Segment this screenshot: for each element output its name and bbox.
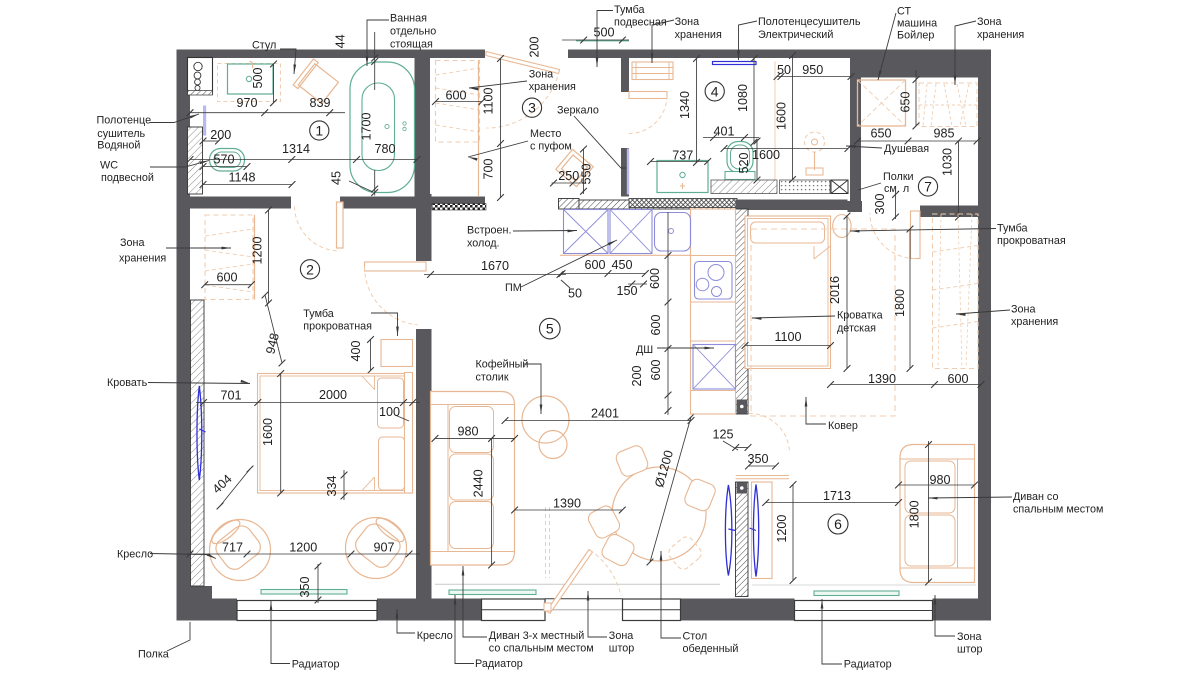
svg-text:970: 970 [236,96,257,110]
svg-text:Стул: Стул [252,40,276,52]
svg-text:907: 907 [373,541,394,555]
svg-text:334: 334 [325,475,339,496]
svg-text:45: 45 [330,171,344,185]
svg-text:401: 401 [713,125,734,139]
svg-text:хранения: хранения [1011,316,1058,328]
svg-text:стоящая: стоящая [390,39,433,51]
svg-text:1200: 1200 [775,515,789,543]
svg-text:100: 100 [379,405,400,419]
svg-text:подвесная: подвесная [614,17,667,29]
svg-text:1: 1 [315,123,323,139]
svg-text:1600: 1600 [752,148,780,162]
svg-text:WC: WC [100,160,118,172]
svg-text:700: 700 [482,158,496,179]
svg-text:6: 6 [834,516,842,532]
svg-text:штор: штор [957,644,983,656]
svg-text:с пуфом: с пуфом [530,141,572,153]
svg-text:Тумба: Тумба [303,308,334,320]
svg-text:Встроен.: Встроен. [467,225,512,237]
svg-text:Полотенце: Полотенце [97,115,152,127]
svg-text:Полка: Полка [138,649,169,661]
svg-text:400: 400 [349,340,363,361]
svg-text:1670: 1670 [481,259,509,273]
svg-text:250: 250 [558,169,579,183]
svg-text:Зеркало: Зеркало [557,105,599,117]
svg-text:подвесной: подвесной [101,172,154,184]
svg-text:1713: 1713 [823,489,851,503]
svg-text:980: 980 [929,473,950,487]
svg-text:350: 350 [298,576,312,597]
svg-text:1340: 1340 [678,91,692,119]
svg-text:600: 600 [445,89,466,103]
svg-text:Диван 3-х местный: Диван 3-х местный [489,630,584,642]
svg-text:1030: 1030 [941,148,955,176]
svg-text:600: 600 [649,314,663,335]
svg-text:50: 50 [777,63,791,77]
svg-text:столик: столик [476,372,509,384]
svg-text:Тумба: Тумба [614,4,645,16]
svg-text:7: 7 [924,179,932,195]
svg-text:машина: машина [897,18,937,30]
svg-text:350: 350 [747,452,768,466]
svg-text:хранения: хранения [119,253,166,265]
svg-text:1700: 1700 [360,112,374,140]
svg-text:хранения: хранения [529,81,576,93]
svg-text:хранения: хранения [675,29,722,41]
svg-text:Душевая: Душевая [884,143,929,155]
svg-text:Зона: Зона [1011,304,1036,316]
svg-text:44: 44 [334,34,348,48]
svg-text:985: 985 [933,127,954,141]
svg-text:1314: 1314 [282,142,310,156]
svg-text:600: 600 [649,359,663,380]
svg-text:950: 950 [802,63,823,77]
svg-text:300: 300 [873,193,887,214]
svg-text:1600: 1600 [774,102,788,130]
svg-text:ДШ: ДШ [636,344,653,356]
svg-text:200: 200 [528,36,542,57]
svg-text:спальным местом: спальным местом [1013,504,1103,516]
svg-text:1800: 1800 [893,289,907,317]
svg-text:1148: 1148 [228,171,255,185]
svg-text:737: 737 [672,149,693,163]
svg-text:3: 3 [528,100,536,116]
svg-text:Зона: Зона [609,630,634,642]
svg-text:1100: 1100 [774,330,801,344]
svg-text:500: 500 [251,67,265,88]
svg-text:50: 50 [568,287,582,301]
svg-text:прокроватная: прокроватная [997,235,1066,247]
svg-text:2440: 2440 [472,469,486,497]
svg-text:хранения: хранения [977,29,1024,41]
svg-text:550: 550 [580,163,594,184]
svg-text:Полки: Полки [883,171,914,183]
svg-text:со спальным местом: со спальным местом [489,643,594,655]
svg-text:Кресло: Кресло [417,630,453,642]
svg-text:839: 839 [309,96,330,110]
svg-text:см. л: см. л [884,183,909,195]
svg-text:Кофейный: Кофейный [476,359,529,371]
svg-text:450: 450 [611,258,632,272]
svg-text:Радиатор: Радиатор [844,659,892,671]
svg-text:780: 780 [374,142,395,156]
svg-text:200: 200 [210,128,231,142]
svg-text:прокроватная: прокроватная [303,321,372,333]
svg-text:600: 600 [648,268,662,289]
svg-text:Зона: Зона [957,631,982,643]
svg-text:2000: 2000 [319,388,347,402]
svg-text:570: 570 [213,153,234,167]
svg-text:Кроватка: Кроватка [837,310,883,322]
svg-text:600: 600 [584,258,605,272]
svg-text:Водяной: Водяной [97,140,140,152]
svg-text:СТ: СТ [897,6,911,18]
svg-text:1200: 1200 [289,541,317,555]
svg-text:1600: 1600 [261,418,275,446]
svg-text:125: 125 [712,428,733,442]
svg-text:Стол: Стол [683,631,708,643]
svg-text:обеденный: обеденный [683,643,739,655]
svg-text:150: 150 [616,284,637,298]
svg-text:4: 4 [711,83,719,99]
svg-text:холод.: холод. [467,238,500,250]
svg-text:Зона: Зона [977,16,1002,28]
svg-text:1800: 1800 [907,500,921,528]
svg-text:600: 600 [947,372,968,386]
svg-text:200: 200 [630,365,644,386]
svg-text:Кровать: Кровать [107,377,148,389]
svg-text:ПМ: ПМ [505,282,522,294]
svg-text:520: 520 [737,152,751,173]
svg-text:1200: 1200 [251,236,265,264]
svg-text:детская: детская [837,323,876,335]
svg-text:Зона: Зона [120,237,145,249]
svg-text:701: 701 [220,389,241,403]
svg-text:1390: 1390 [553,497,581,511]
svg-text:600: 600 [216,271,237,285]
svg-text:1080: 1080 [736,84,750,112]
svg-text:Место: Место [530,128,561,140]
svg-text:1100: 1100 [482,87,496,114]
svg-text:2401: 2401 [591,407,619,421]
svg-text:Кресло: Кресло [117,549,153,561]
svg-text:980: 980 [457,425,478,439]
svg-text:штор: штор [609,643,635,655]
svg-text:2: 2 [306,261,314,277]
svg-text:Радиатор: Радиатор [475,658,523,670]
svg-text:5: 5 [546,321,554,337]
svg-text:Зона: Зона [675,16,700,28]
svg-text:Тумба: Тумба [997,223,1028,235]
svg-text:отдельно: отдельно [390,26,436,38]
svg-text:сушитель: сушитель [97,128,145,140]
svg-text:Радиатор: Радиатор [292,659,340,671]
svg-text:Ковер: Ковер [828,420,858,432]
svg-text:717: 717 [222,541,243,555]
svg-text:Диван со: Диван со [1013,491,1058,503]
svg-text:Бойлер: Бойлер [897,30,934,42]
svg-text:650: 650 [899,91,913,112]
svg-text:650: 650 [870,127,891,141]
svg-text:Зона: Зона [529,69,554,81]
svg-text:Электрический: Электрический [758,29,833,41]
svg-text:2016: 2016 [828,276,842,304]
svg-text:1390: 1390 [868,372,896,386]
svg-text:Ванная: Ванная [390,13,427,25]
svg-text:Полотенцесушитель: Полотенцесушитель [758,16,861,28]
